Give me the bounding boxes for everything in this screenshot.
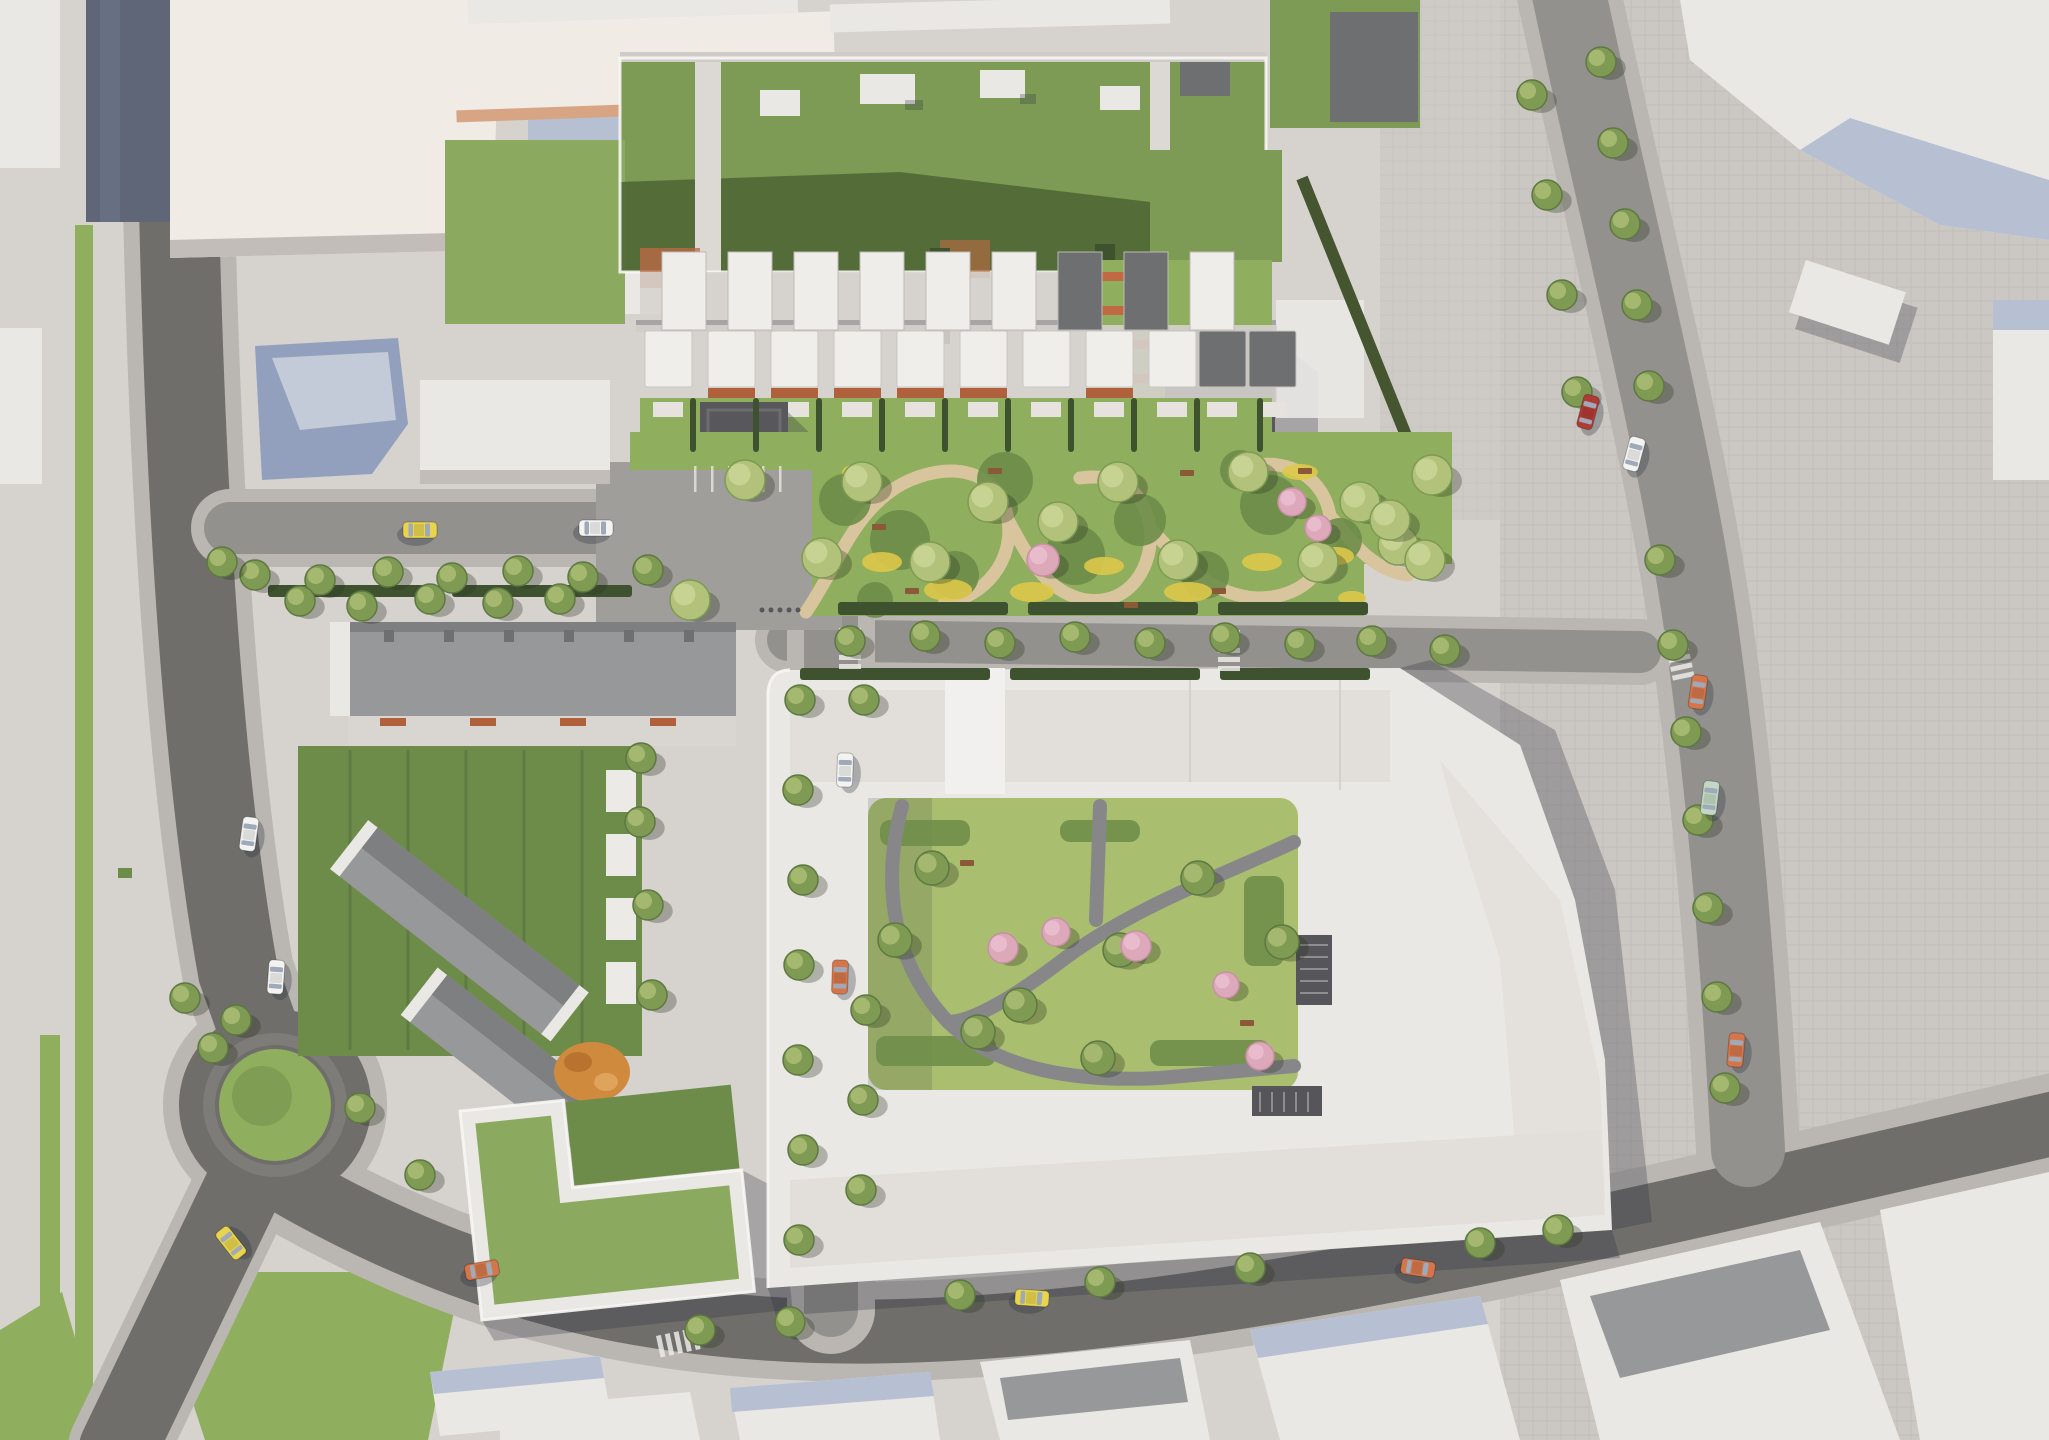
mews-house-roof [1249,331,1296,387]
mews-brick-facade [771,388,818,398]
roof-unit [926,252,970,330]
roof-unit [992,252,1036,330]
flower-bed [1084,557,1124,575]
hedge [800,668,990,680]
bench [1212,588,1226,594]
mews-house-roof [1023,331,1070,387]
mews-brick-facade [834,388,881,398]
hedge [1131,398,1137,452]
bike-rack [778,608,783,613]
parking-bay-line [711,466,714,492]
roof-unit [794,252,838,330]
hedge [879,398,885,452]
roof-unit [1058,252,1102,330]
aerial-render-stage [0,0,2049,1440]
bike-rack [769,608,774,613]
bench [872,524,886,530]
hedge [1005,398,1011,452]
green-roof-west [445,140,625,324]
bench [960,860,974,866]
mews-house-roof [1149,331,1196,387]
playground [554,1042,630,1102]
garden-patio [1094,402,1124,417]
roof-unit [728,252,772,330]
sw-patio [606,898,636,940]
garden-patio [968,402,998,417]
roof-unit [1124,252,1168,330]
mews-house-roof [1199,331,1246,387]
hedge [1194,398,1200,452]
hedge [690,398,696,452]
hedge [838,602,1008,615]
bike-rack [796,608,801,613]
mews-house-roof [1086,331,1133,387]
sw-patio [606,834,636,876]
hedge [1028,602,1198,615]
mews-house-roof [645,331,692,387]
mews-brick-facade [897,388,944,398]
hedge [816,398,822,452]
hedge [1257,398,1263,452]
parking-bay-line [779,466,782,492]
courtyard-path [1096,806,1100,920]
garden-patio [842,402,872,417]
hedge [753,398,759,452]
bench [1298,468,1312,474]
bench [905,588,919,594]
aerial-site-plan-render [0,0,2049,1440]
bike-rack [760,608,765,613]
garden-patio [653,402,683,417]
entrance-passage [945,668,1005,794]
hedge [1068,398,1074,452]
hedge [942,398,948,452]
flower-bed [1164,582,1212,602]
sw-patio [606,962,636,1004]
bench [1180,470,1194,476]
mews-house-roof [708,331,755,387]
bike-rack [787,608,792,613]
flower-bed [1010,582,1054,602]
garden-patio [1157,402,1187,417]
flower-bed [862,552,902,572]
garden-patio [1207,402,1237,417]
mews-house-roof [834,331,881,387]
top-block-south-units [662,252,1234,330]
mews-house-roof [897,331,944,387]
parking-bay-line [694,466,697,492]
roof-unit [860,252,904,330]
bench [988,468,1002,474]
bench [1124,602,1138,608]
bench [1240,1020,1254,1026]
garden-patio [1031,402,1061,417]
hedge [1010,668,1200,680]
mews-brick-facade [1086,388,1133,398]
mews-brick-facade [708,388,755,398]
mews-house-roof [771,331,818,387]
hedge [1218,602,1368,615]
sw-patio [606,770,636,812]
southeast-block [768,660,1652,1316]
garden-patio [905,402,935,417]
hedge [1220,668,1370,680]
roof-unit [662,252,706,330]
terrace-row-north [348,622,736,716]
flower-bed [1242,553,1282,571]
roof-unit [1190,252,1234,330]
mews-brick-facade [960,388,1007,398]
mews-house-roof [960,331,1007,387]
